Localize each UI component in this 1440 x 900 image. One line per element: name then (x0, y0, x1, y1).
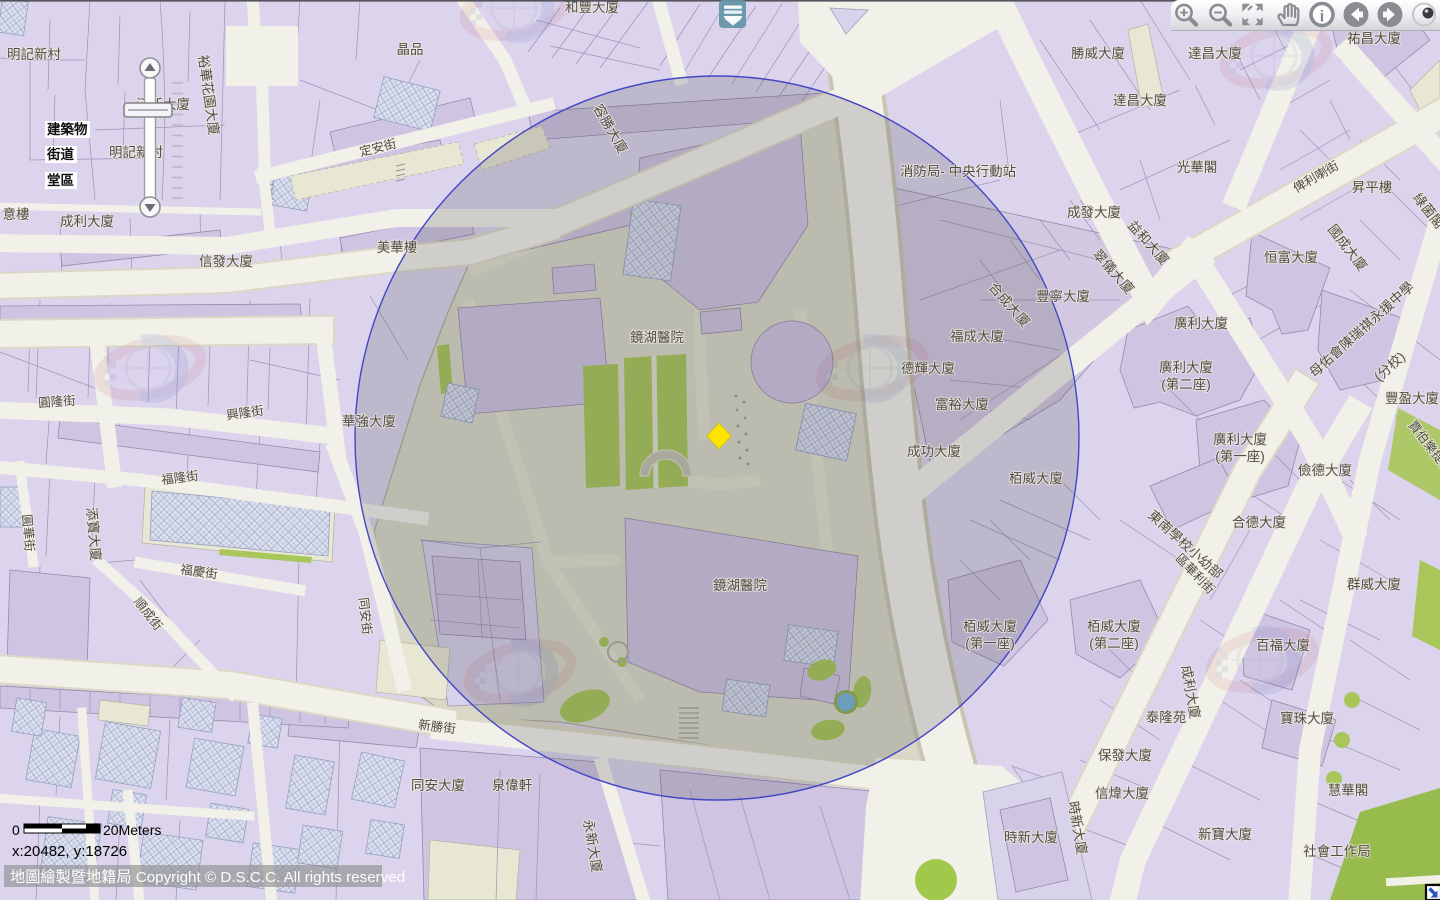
svg-text:圓隆街: 圓隆街 (38, 393, 76, 411)
svg-text:合德大廈: 合德大廈 (1232, 514, 1286, 530)
svg-text:鏡湖醫院: 鏡湖醫院 (630, 330, 684, 345)
svg-text:廣利大廈: 廣利大廈 (1159, 359, 1213, 375)
svg-text:和豐大廈: 和豐大廈 (565, 0, 619, 15)
svg-text:20Meters: 20Meters (103, 822, 161, 838)
svg-text:鏡湖醫院: 鏡湖醫院 (713, 578, 767, 593)
svg-text:同安大廈: 同安大廈 (411, 777, 465, 793)
svg-text:勝威大廈: 勝威大廈 (1071, 45, 1125, 61)
svg-text:美華樓: 美華樓 (377, 240, 418, 255)
svg-text:明記新村: 明記新村 (7, 46, 61, 62)
svg-text:意樓: 意樓 (3, 206, 30, 222)
svg-text:地圖繪製暨地籍局 Copyright © D.S.C.C.: 地圖繪製暨地籍局 Copyright © D.S.C.C. All rights… (10, 868, 405, 886)
svg-text:晶品: 晶品 (397, 42, 424, 57)
svg-text:達昌大廈: 達昌大廈 (1188, 45, 1242, 61)
svg-text:(第二座): (第二座) (1089, 635, 1139, 651)
svg-text:恒富大廈: 恒富大廈 (1264, 249, 1318, 265)
svg-text:光華閣: 光華閣 (1177, 160, 1218, 175)
svg-text:廣利大廈: 廣利大廈 (1213, 431, 1267, 447)
svg-text:保發大廈: 保發大廈 (1098, 747, 1152, 763)
svg-text:栢威大廈: 栢威大廈 (1009, 470, 1063, 486)
svg-text:0: 0 (12, 822, 20, 838)
svg-text:栢威大廈: 栢威大廈 (1087, 618, 1141, 634)
svg-text:泉偉軒: 泉偉軒 (492, 777, 533, 793)
svg-text:x:20482, y:18726: x:20482, y:18726 (12, 843, 127, 860)
svg-text:泰隆苑: 泰隆苑 (1146, 710, 1187, 725)
svg-text:昇平樓: 昇平樓 (1352, 180, 1393, 195)
svg-text:豐寧大廈: 豐寧大廈 (1036, 288, 1090, 304)
svg-text:福成大廈: 福成大廈 (950, 328, 1004, 344)
svg-text:德輝大廈: 德輝大廈 (901, 360, 955, 376)
svg-text:祐昌大廈: 祐昌大廈 (1347, 30, 1401, 46)
svg-text:成利大廈: 成利大廈 (60, 213, 114, 229)
svg-text:堂區: 堂區 (47, 172, 74, 188)
svg-text:成功大廈: 成功大廈 (907, 443, 961, 459)
svg-text:華強大廈: 華強大廈 (342, 413, 396, 429)
svg-text:栢威大廈: 栢威大廈 (963, 618, 1017, 634)
svg-text:(第二座): (第二座) (1161, 376, 1211, 392)
svg-text:(第一座): (第一座) (1215, 448, 1265, 464)
svg-text:i: i (1320, 9, 1324, 26)
svg-text:慧華閣: 慧華閣 (1328, 783, 1369, 798)
svg-text:(第一座): (第一座) (965, 635, 1015, 651)
svg-text:消防局- 中央行動站: 消防局- 中央行動站 (900, 164, 1016, 179)
svg-text:新寶大廈: 新寶大廈 (1198, 826, 1252, 842)
svg-text:信發大廈: 信發大廈 (199, 253, 253, 269)
svg-text:街道: 街道 (46, 146, 74, 162)
svg-text:豐盈大廈: 豐盈大廈 (1385, 390, 1439, 406)
svg-text:富裕大廈: 富裕大廈 (935, 396, 989, 412)
svg-text:社會工作局: 社會工作局 (1303, 844, 1371, 859)
svg-text:百福大廈: 百福大廈 (1256, 637, 1310, 653)
svg-text:時新大廈: 時新大廈 (1004, 829, 1058, 845)
svg-text:建築物: 建築物 (46, 121, 88, 137)
svg-text:群威大廈: 群威大廈 (1347, 576, 1401, 592)
svg-text:寶珠大廈: 寶珠大廈 (1280, 710, 1334, 726)
svg-text:信煒大廈: 信煒大廈 (1095, 785, 1149, 801)
svg-text:達昌大廈: 達昌大廈 (1113, 92, 1167, 108)
svg-text:廣利大廈: 廣利大廈 (1174, 315, 1228, 331)
svg-text:儉德大廈: 儉德大廈 (1298, 462, 1352, 478)
svg-text:成發大廈: 成發大廈 (1067, 204, 1121, 220)
